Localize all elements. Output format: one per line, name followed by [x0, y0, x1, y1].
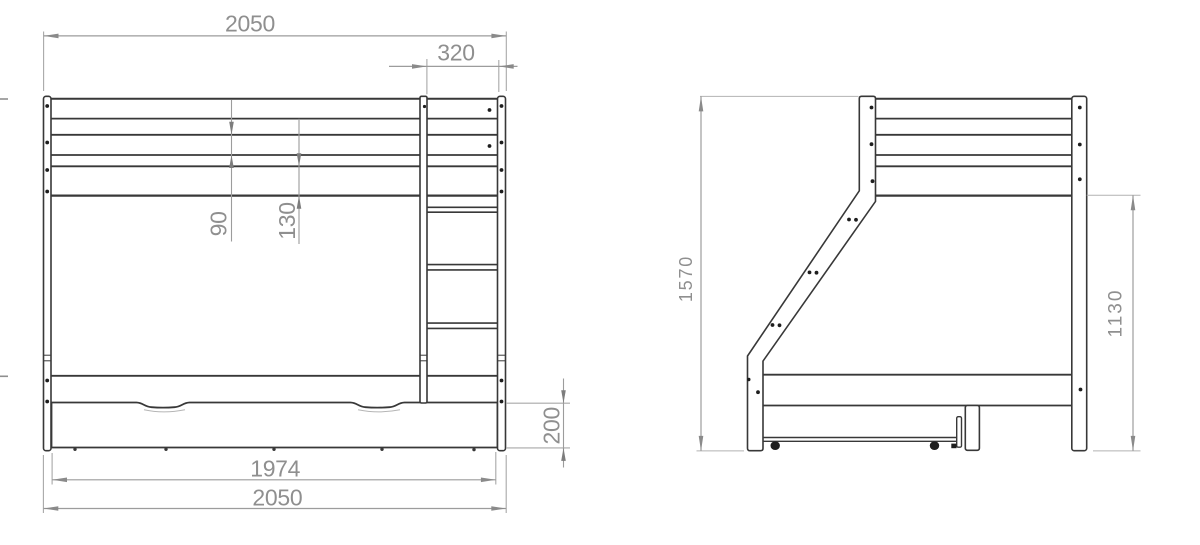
svg-text:90: 90	[205, 211, 231, 236]
svg-text:200: 200	[539, 407, 565, 444]
svg-text:2050: 2050	[252, 485, 302, 511]
svg-text:1974: 1974	[250, 456, 300, 482]
svg-text:2050: 2050	[225, 11, 275, 37]
svg-text:320: 320	[437, 40, 474, 66]
svg-text:1130: 1130	[1106, 289, 1127, 338]
svg-text:130: 130	[274, 202, 300, 239]
svg-text:1570: 1570	[676, 255, 696, 302]
